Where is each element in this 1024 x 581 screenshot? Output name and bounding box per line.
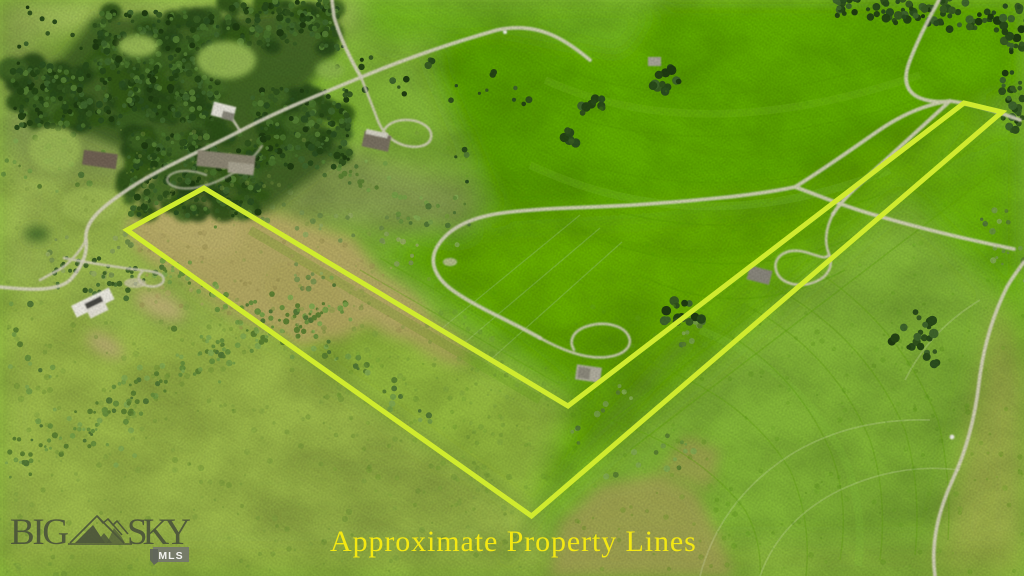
svg-text:MLS: MLS (158, 550, 183, 562)
svg-text:BIG: BIG (10, 512, 69, 553)
svg-text:SKY: SKY (127, 512, 191, 553)
svg-text:Approximate Property Lines: Approximate Property Lines (330, 525, 697, 558)
